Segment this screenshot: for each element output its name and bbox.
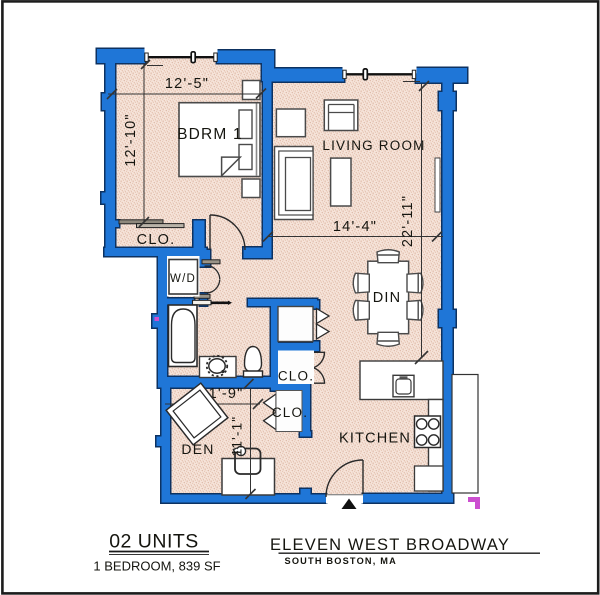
svg-text:BDRM 1: BDRM 1	[177, 126, 243, 143]
svg-text:02 UNITS: 02 UNITS	[109, 531, 199, 553]
svg-text:CLO.: CLO.	[272, 405, 308, 420]
svg-text:DIN: DIN	[373, 290, 402, 306]
svg-text:LIVING ROOM: LIVING ROOM	[322, 138, 425, 153]
svg-text:CLO.: CLO.	[137, 232, 176, 248]
svg-text:14'-4": 14'-4"	[333, 219, 377, 235]
svg-text:KITCHEN: KITCHEN	[339, 431, 411, 447]
svg-text:W/D: W/D	[170, 273, 196, 285]
svg-text:SOUTH BOSTON, MA: SOUTH BOSTON, MA	[285, 556, 397, 566]
svg-text:1 BEDROOM, 839 SF: 1 BEDROOM, 839 SF	[93, 559, 220, 574]
svg-text:DEN: DEN	[181, 441, 214, 457]
svg-text:CLO.: CLO.	[278, 369, 314, 384]
svg-text:ELEVEN WEST BROADWAY: ELEVEN WEST BROADWAY	[270, 536, 510, 554]
svg-text:22'-11": 22'-11"	[400, 195, 416, 247]
svg-text:12'-10": 12'-10"	[123, 113, 139, 166]
svg-text:11'-1": 11'-1"	[230, 416, 245, 457]
svg-text:12'-5": 12'-5"	[165, 76, 209, 92]
